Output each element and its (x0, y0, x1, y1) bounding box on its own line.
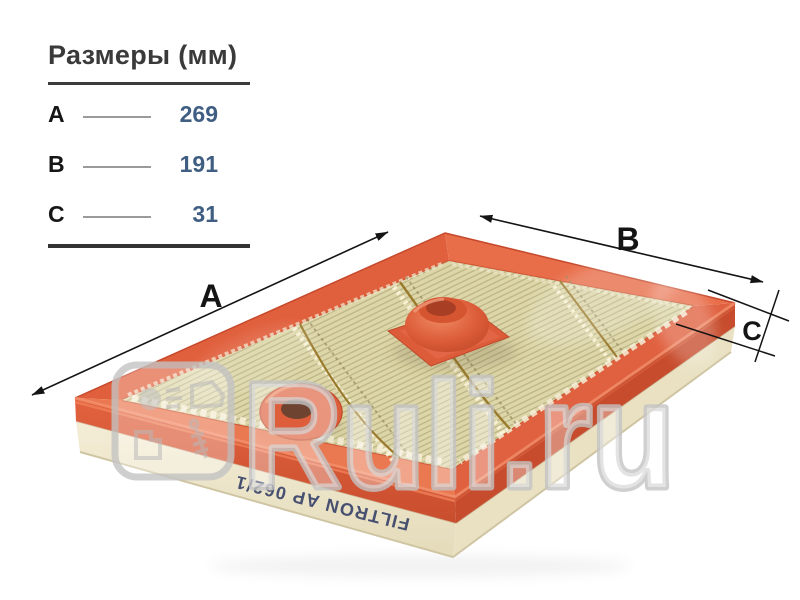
filter-ground-shadow (210, 555, 630, 577)
watermark-logo-badge (115, 365, 231, 477)
watermark-text: Ruli.ru (243, 351, 675, 519)
dimension-label-c: C (742, 316, 762, 346)
air-filter-illustration: FILTRON AP 062/1 A B C (0, 0, 800, 600)
dimension-label-b: B (616, 221, 639, 257)
headlight-icon (139, 388, 161, 410)
product-image-page: Размеры (мм) A 269 B 191 C 31 (0, 0, 800, 600)
dimension-label-a: A (199, 278, 222, 314)
watermark: Ruli.ru (115, 351, 675, 519)
